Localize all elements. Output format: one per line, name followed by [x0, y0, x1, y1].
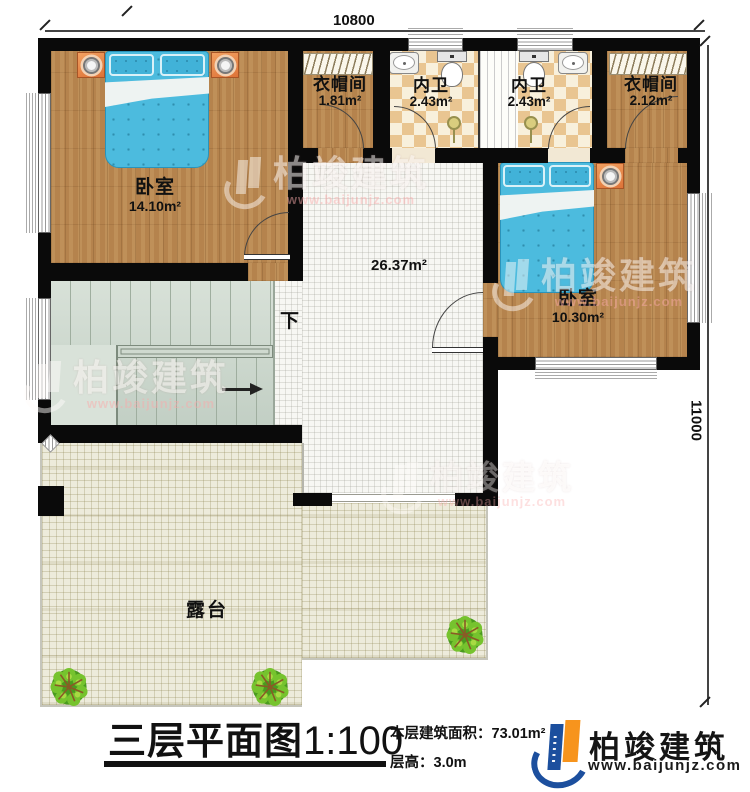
wall-stairs-bottom [38, 425, 302, 443]
stairs-edge-line [273, 281, 275, 425]
window-sill [26, 298, 36, 400]
tree-plant-icon [251, 668, 289, 706]
floor-area-label: 本层建筑面积： [390, 726, 492, 742]
bathroom2-sink-icon [558, 52, 588, 74]
drawing-title: 三层平面图1:100 [108, 710, 403, 765]
dimension-line-top [45, 30, 705, 32]
company-logo-icon [534, 719, 588, 781]
dimension-tick [699, 35, 710, 46]
bedroom1-pillow-right [160, 54, 205, 76]
terrace-column [38, 486, 64, 516]
stairs-direction-label: 下 [280, 306, 299, 333]
bedroom2-area: 10.30m² [528, 310, 628, 325]
wall-right-a [687, 38, 700, 193]
bathroom2-top-window [517, 38, 573, 51]
dimension-line-right [707, 45, 709, 705]
bedroom2-door-leaf [432, 347, 483, 353]
cloakroom1-area: 1.81m² [305, 94, 375, 109]
wall-bedroom1-right [288, 51, 303, 281]
title-underline [104, 761, 386, 767]
bathroom2-area: 2.43m² [496, 95, 562, 110]
wall-hall-top-1 [303, 148, 318, 163]
bathroom1-door-gap [392, 148, 435, 163]
bedroom2-pillow-left [503, 165, 545, 187]
dimension-tick [39, 19, 50, 30]
bedroom1-label: 卧室 14.10m² [105, 178, 205, 214]
wall-bathroom1-left [373, 51, 390, 148]
cloakroom2-area: 2.12m² [615, 94, 687, 109]
hall-area-label: 26.37m² [371, 257, 427, 274]
bathroom2-drain-icon [524, 116, 538, 130]
bathroom1-area: 2.43m² [398, 95, 464, 110]
wall-hall-top-3 [435, 148, 548, 163]
dimension-right-value: 11000 [688, 391, 705, 451]
floor-plan-canvas: 卧室 14.10m² 衣帽间 1.81m² 内卫 2.43m² 内卫 2.43m… [0, 0, 750, 792]
bathroom1-name: 内卫 [398, 77, 464, 95]
bedroom2-door-gap [483, 283, 498, 337]
dimension-tick [693, 19, 704, 30]
bedroom1-name: 卧室 [105, 178, 205, 199]
terrace-hall-divider [302, 443, 304, 495]
wall-bedroom2-left-upper [483, 163, 498, 283]
tree-plant-icon [446, 616, 484, 654]
cloakroom1-door-gap [318, 148, 363, 163]
floor-area-info: 本层建筑面积：73.01m² [390, 722, 546, 743]
stairs-upper-flight [51, 281, 273, 345]
bedroom1-pillow-left [109, 54, 154, 76]
lamp-icon [83, 57, 100, 74]
floor-height-value: 3.0m [434, 755, 467, 771]
bedroom1-nightstand-left [77, 52, 105, 78]
wall-hall-terrace [293, 493, 332, 506]
drawing-title-text: 三层平面图 [108, 721, 303, 763]
stairs-landing [51, 345, 117, 425]
stairs-handrail [117, 345, 273, 358]
cloakroom2-door-gap [625, 148, 678, 163]
wall-left-a [38, 38, 51, 93]
wall-hall-top-4 [590, 148, 625, 163]
bathroom1-drain-icon [447, 116, 461, 130]
stairs-direction-arrow-tail [222, 388, 252, 391]
cloakroom2-name: 衣帽间 [615, 76, 687, 94]
drawing-scale: 1:100 [303, 719, 403, 763]
wall-hall-top-2 [363, 148, 392, 163]
stairs-divider [116, 345, 118, 425]
bedroom2-bottom-window [535, 357, 657, 370]
bathroom2-name: 内卫 [496, 77, 562, 95]
bedroom2-right-window [687, 193, 700, 323]
bathroom1-sink-icon [389, 52, 419, 74]
lamp-icon [217, 57, 234, 74]
cloakroom1-name: 衣帽间 [305, 76, 375, 94]
dimension-top-value: 10800 [333, 12, 375, 29]
window-sill [26, 93, 36, 233]
bedroom2-name: 卧室 [528, 289, 628, 310]
cloakroom1-label: 衣帽间 1.81m² [305, 76, 375, 109]
wall-bedroom2-bottom-left [483, 357, 535, 370]
bedroom1-nightstand-right [211, 52, 239, 78]
dimension-tick [121, 5, 132, 16]
bedroom1-door-gap [248, 263, 288, 281]
terrace-opening-line [332, 494, 455, 502]
dimension-tick [699, 696, 710, 707]
bedroom2-label: 卧室 10.30m² [528, 289, 628, 325]
wall-top [38, 38, 700, 51]
cloakroom1-clothes-rack [303, 53, 373, 75]
hall-floor-strip [273, 281, 302, 425]
bathroom1-top-window [408, 38, 463, 51]
wall-hall-bottom-right [455, 493, 498, 506]
window-sill [535, 372, 657, 380]
bedroom2-pillow-right [549, 165, 591, 187]
floor-height-label: 层高： [390, 755, 434, 771]
bedroom1-door-leaf [244, 254, 290, 260]
lamp-icon [602, 168, 619, 185]
cloakroom2-clothes-rack [609, 53, 687, 75]
tree-plant-icon [50, 668, 88, 706]
wall-bedroom2-bottom-right [657, 357, 700, 370]
cloakroom2-label: 衣帽间 2.12m² [615, 76, 687, 109]
bedroom1-area: 14.10m² [105, 199, 205, 214]
bathroom2-label: 内卫 2.43m² [496, 77, 562, 110]
bedroom1-left-window [38, 93, 51, 233]
wall-hall-top-5 [678, 148, 700, 163]
company-logo-website: www.baijunjz.com [588, 757, 741, 774]
stairs-direction-arrow-head [250, 383, 263, 395]
floor-height-info: 层高：3.0m [390, 751, 467, 772]
terrace-label: 露台 [186, 595, 228, 622]
stairs-left-window [38, 298, 51, 400]
wall-bedroom1-bottom [38, 263, 248, 281]
wall-bathroom2-right [592, 51, 607, 148]
bedroom2-nightstand [596, 163, 624, 189]
bathroom2-door-gap [548, 148, 590, 163]
bathroom1-label: 内卫 2.43m² [398, 77, 464, 110]
